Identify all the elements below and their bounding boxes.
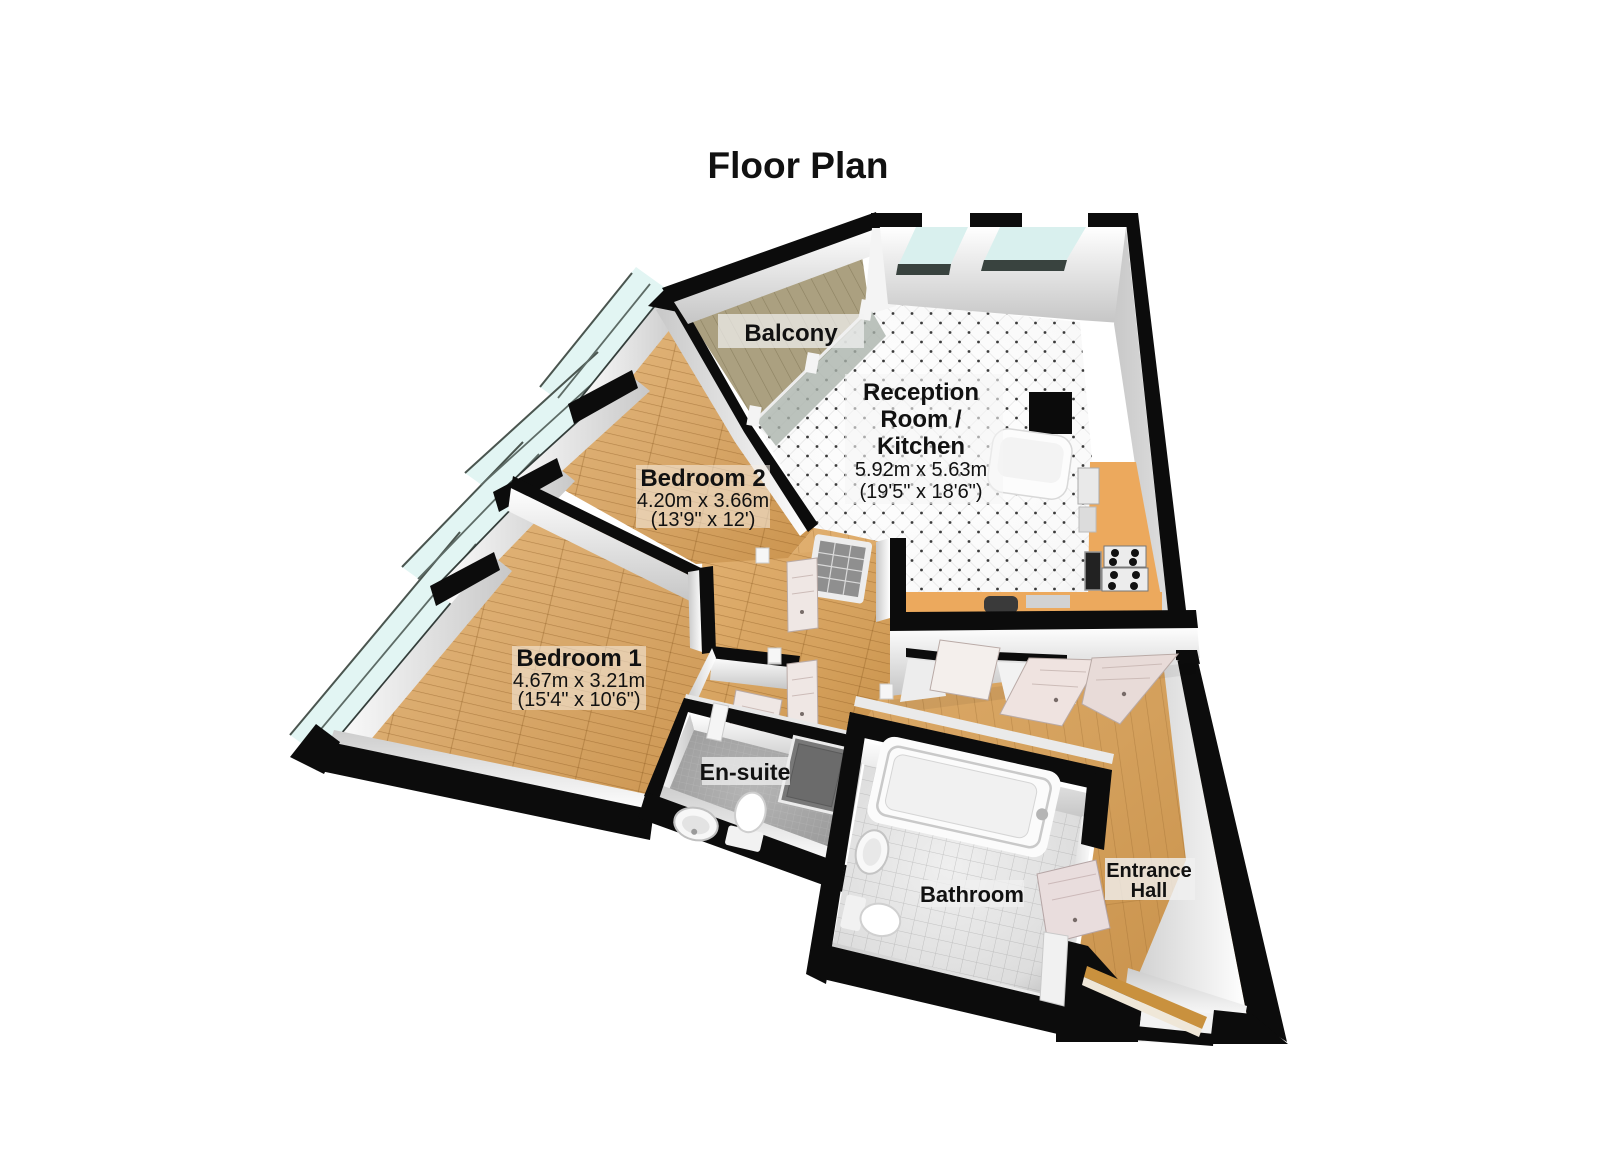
svg-text:Balcony: Balcony <box>744 320 838 347</box>
svg-text:Reception: Reception <box>863 379 979 406</box>
svg-text:En-suite: En-suite <box>700 759 791 785</box>
svg-text:Floor Plan: Floor Plan <box>708 145 889 186</box>
svg-text:Room /: Room / <box>880 406 962 433</box>
svg-text:(13'9" x 12'): (13'9" x 12') <box>651 509 756 531</box>
svg-text:Hall: Hall <box>1131 880 1168 902</box>
svg-text:Entrance: Entrance <box>1106 860 1192 882</box>
svg-text:(19'5" x 18'6"): (19'5" x 18'6") <box>859 481 982 503</box>
svg-text:Bedroom 1: Bedroom 1 <box>516 645 641 672</box>
svg-text:(15'4" x 10'6"): (15'4" x 10'6") <box>517 689 640 711</box>
svg-text:5.92m x 5.63m: 5.92m x 5.63m <box>855 459 987 481</box>
svg-text:Bathroom: Bathroom <box>920 882 1024 907</box>
svg-text:Bedroom 2: Bedroom 2 <box>640 465 765 492</box>
svg-text:Kitchen: Kitchen <box>877 433 965 460</box>
